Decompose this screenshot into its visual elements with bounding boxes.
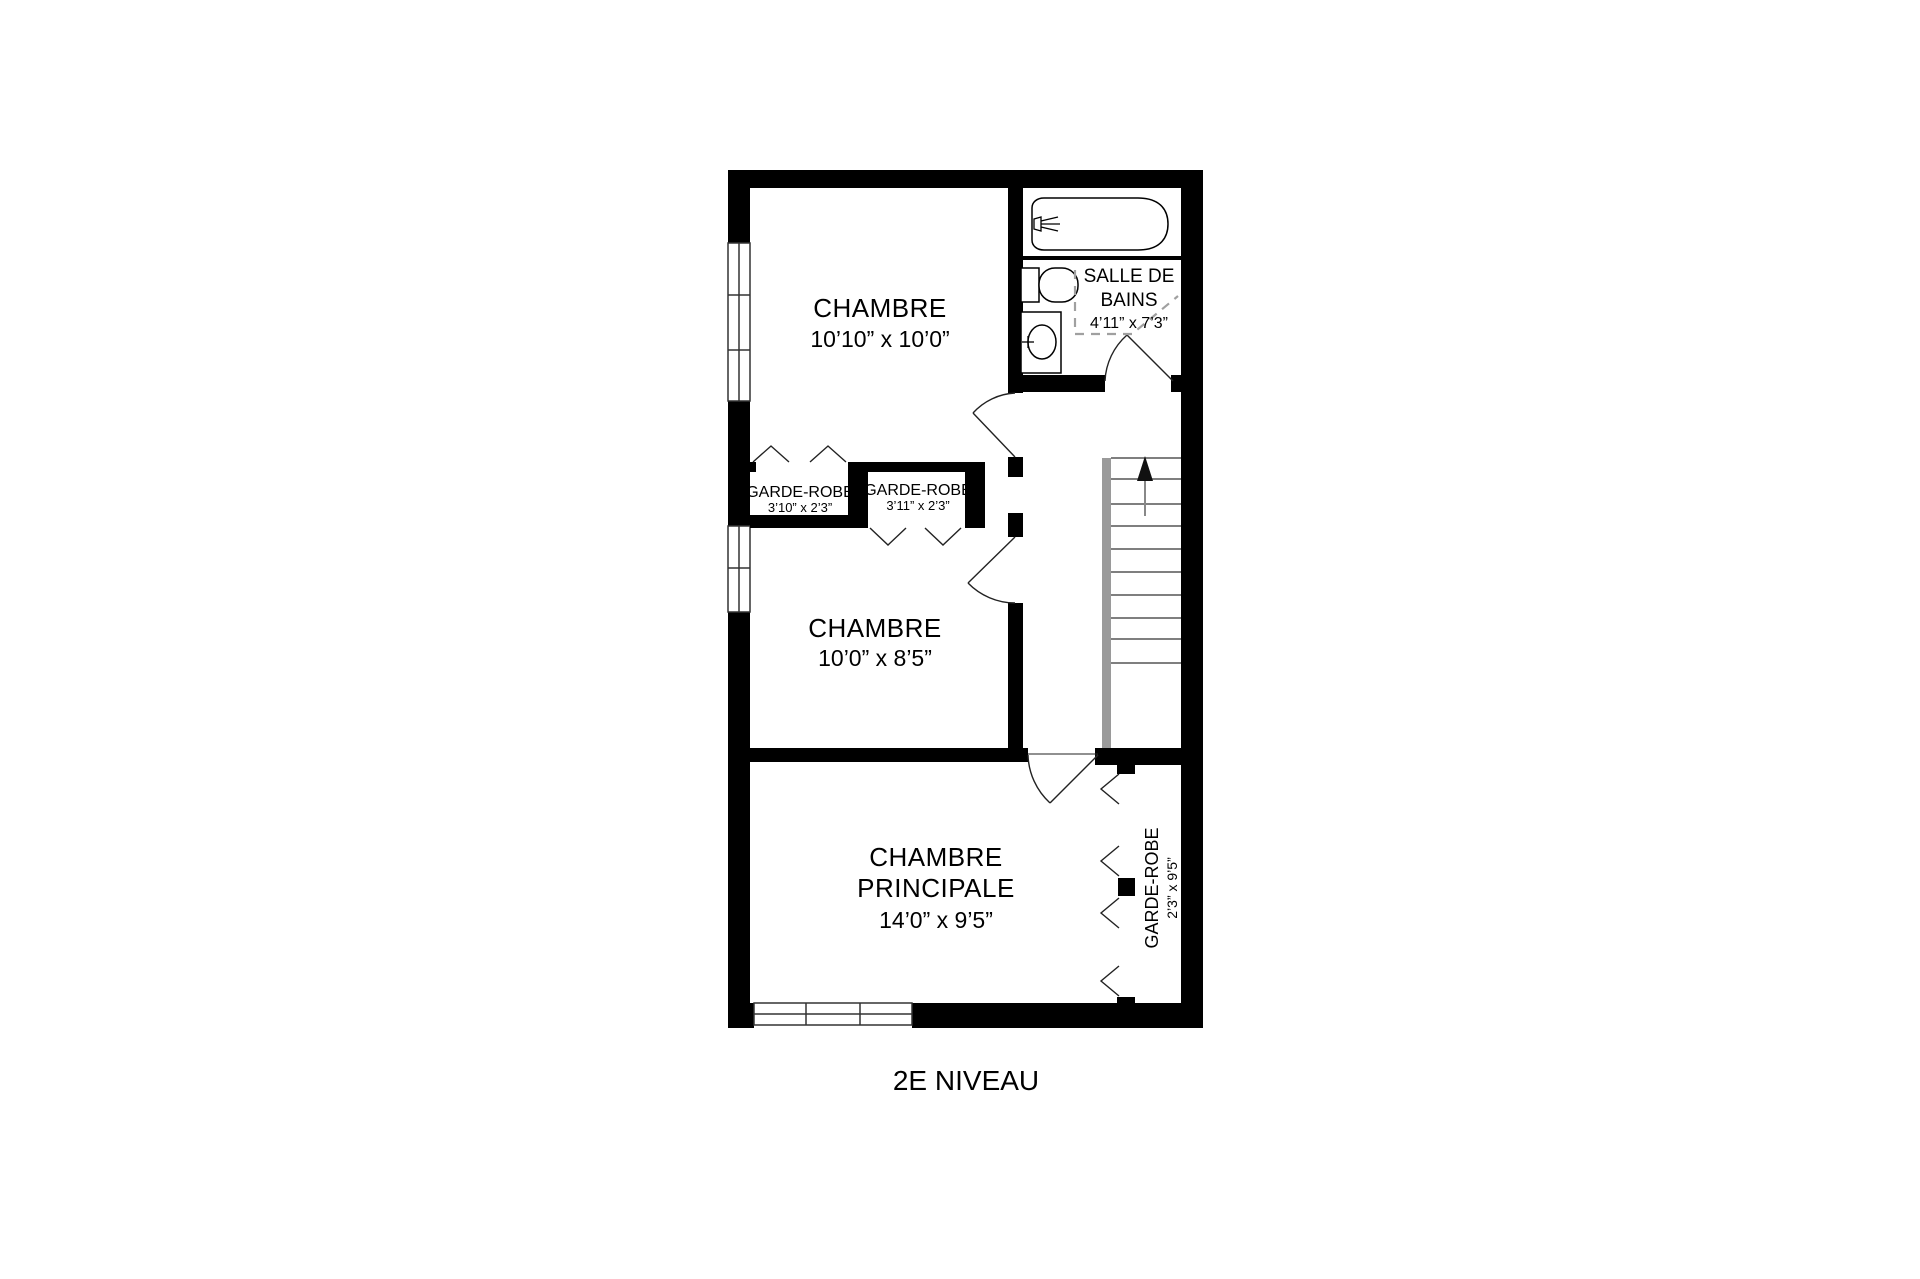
- master-closet-label: GARDE-ROBE: [1142, 827, 1162, 948]
- master-closet-dims: 2’3” x 9’5”: [1164, 857, 1180, 919]
- closet2-label: GARDE-ROBE: [864, 482, 972, 499]
- bedroom2-label: CHAMBRE: [808, 613, 942, 643]
- master-bedroom-dims: 14’0” x 9’5”: [879, 907, 993, 933]
- master-bedroom-label-line1: CHAMBRE: [869, 842, 1003, 872]
- window-bedroom2: [728, 526, 750, 612]
- door-bedroom1: [973, 393, 1015, 457]
- stairs-up-arrow-icon: [1137, 456, 1153, 516]
- stair-stringer: [1102, 458, 1111, 748]
- floor-plan-page: CHAMBRE 10’10” x 10’0” CHAMBRE 10’0” x 8…: [0, 0, 1920, 1279]
- doors: [968, 335, 1173, 803]
- bathroom-dims: 4’11” x 7’3”: [1090, 315, 1168, 332]
- floor-plan-drawing: CHAMBRE 10’10” x 10’0” CHAMBRE 10’0” x 8…: [0, 0, 1920, 1279]
- door-bathroom: [1105, 335, 1173, 381]
- window-master-bedroom: [754, 1003, 912, 1025]
- closet1-label: GARDE-ROBE: [746, 484, 854, 501]
- sink-vanity-icon: [1021, 312, 1061, 373]
- staircase: [1102, 456, 1181, 748]
- master-bedroom-label-line2: PRINCIPALE: [857, 873, 1015, 903]
- window-bedroom1: [728, 243, 750, 401]
- bedroom1-dims: 10’10” x 10’0”: [810, 326, 949, 352]
- closet1-dims: 3’10” x 2’3”: [768, 500, 832, 515]
- bifold-closet-master-icon: [1101, 774, 1119, 996]
- bedroom1-label: CHAMBRE: [813, 293, 947, 323]
- bifold-closet2-icon: [870, 528, 961, 545]
- closet2-dims: 3’11” x 2’3”: [886, 498, 949, 513]
- toilet-icon: [1021, 268, 1078, 302]
- bathroom-label-line1: SALLE DE: [1084, 266, 1175, 287]
- bifold-closet1-icon: [753, 446, 846, 462]
- door-bedroom2: [968, 537, 1015, 603]
- door-master-bedroom: [1028, 754, 1098, 803]
- plan-title: 2E NIVEAU: [893, 1065, 1039, 1096]
- bedroom2-dims: 10’0” x 8’5”: [818, 645, 932, 671]
- bifold-track-blocks: [1117, 764, 1135, 1007]
- bathroom-label-line2: BAINS: [1100, 290, 1157, 311]
